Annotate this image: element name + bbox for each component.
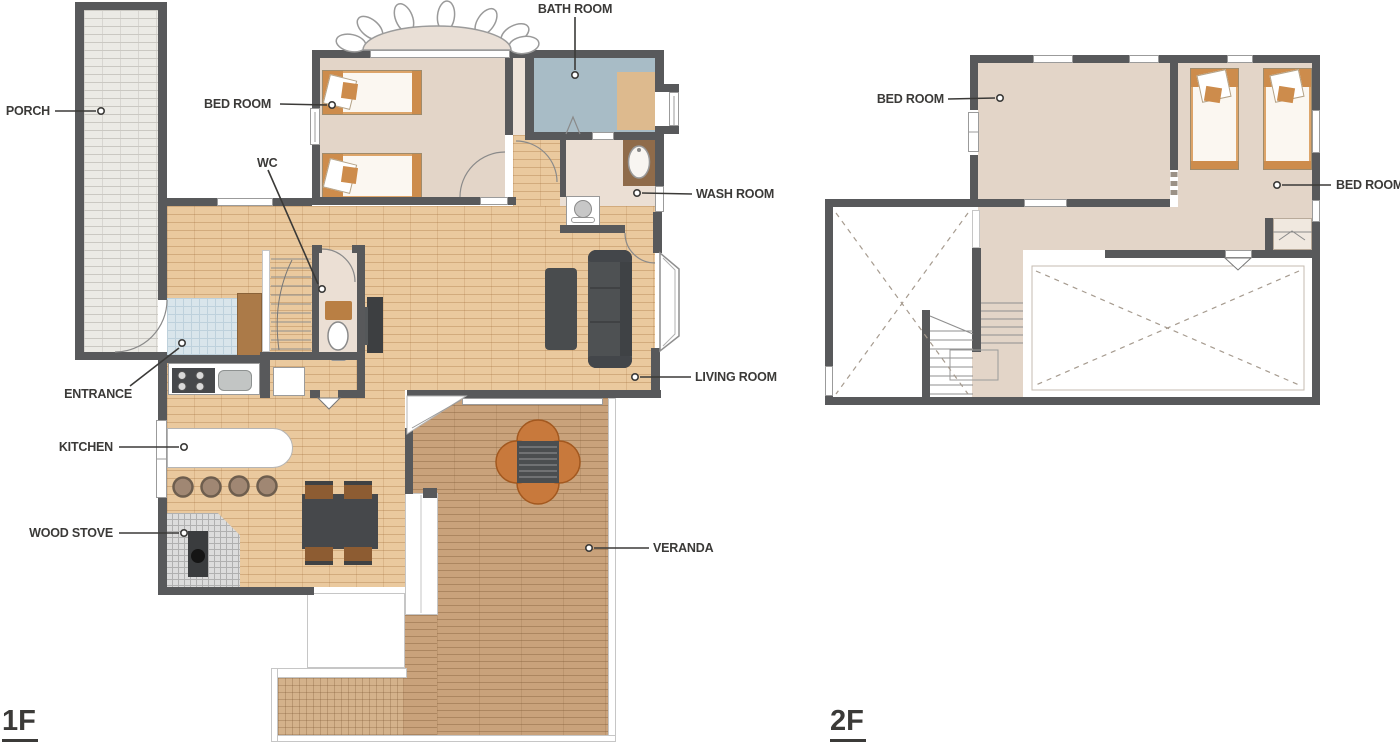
label-entrance: ENTRANCE <box>20 388 132 401</box>
label-kitchen: KITCHEN <box>0 441 113 454</box>
sofa-cushion-lines <box>590 288 620 322</box>
arch-window-ornament <box>335 0 540 55</box>
open-void-marks <box>836 213 1299 394</box>
stairs-1f <box>271 259 311 350</box>
door-arcs <box>115 117 655 352</box>
bay-window <box>660 253 679 351</box>
closet-symbol <box>1273 231 1312 240</box>
stairs-2f <box>930 303 1023 394</box>
label-bedroom-2f-left: BED ROOM <box>872 93 944 106</box>
floor-plan-canvas: PORCH BED ROOM BATH ROOM WC WASH ROOM EN… <box>0 0 1400 747</box>
label-bedroom-2f-right: BED ROOM <box>1336 179 1400 192</box>
label-porch: PORCH <box>0 105 50 118</box>
label-bedroom-1f: BED ROOM <box>204 98 271 111</box>
floor-title-2f: 2F <box>830 707 866 742</box>
label-wc: WC <box>257 157 277 170</box>
label-veranda: VERANDA <box>653 542 713 555</box>
floor-title-1f: 1F <box>2 707 38 742</box>
label-bathroom: BATH ROOM <box>530 3 620 16</box>
label-wood-stove: WOOD STOVE <box>0 527 113 540</box>
veranda-corner-glass <box>407 396 466 613</box>
label-washroom: WASH ROOM <box>696 188 774 201</box>
veranda-table-set <box>496 420 580 504</box>
label-living-room: LIVING ROOM <box>695 371 777 384</box>
counter-stools <box>174 477 277 497</box>
door-v-symbols <box>318 258 1251 409</box>
appliance-details <box>178 146 650 563</box>
